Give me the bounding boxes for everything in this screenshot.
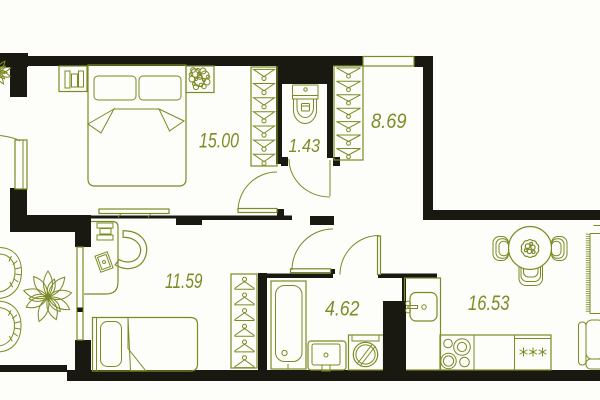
svg-text:11.59: 11.59 bbox=[165, 270, 203, 293]
svg-text:8.69: 8.69 bbox=[371, 110, 407, 133]
svg-text:1.43: 1.43 bbox=[289, 136, 321, 156]
svg-text:15.00: 15.00 bbox=[199, 130, 239, 153]
svg-text:16.53: 16.53 bbox=[468, 292, 510, 315]
svg-text:4.62: 4.62 bbox=[325, 298, 360, 321]
